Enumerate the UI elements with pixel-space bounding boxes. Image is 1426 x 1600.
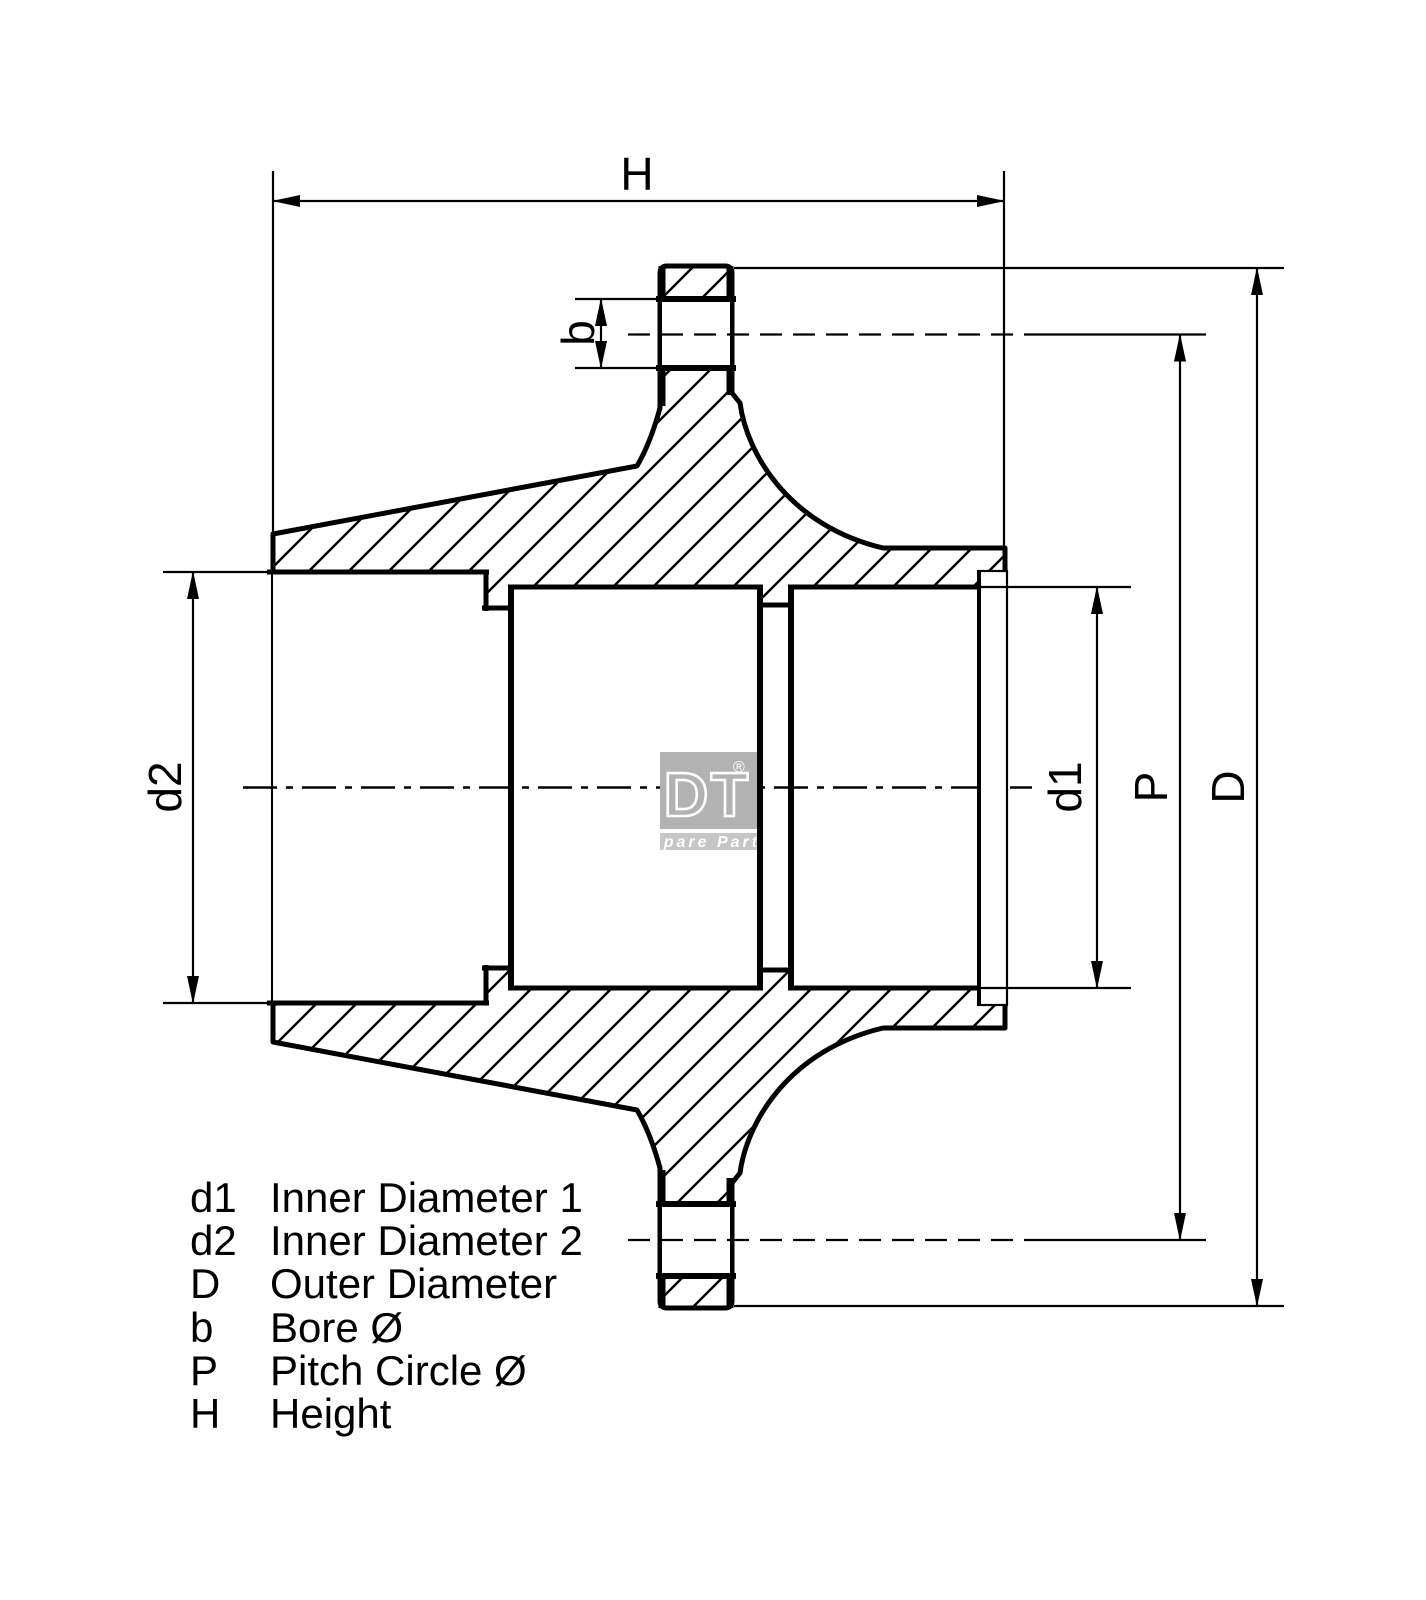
legend-symbol: H [190,1390,220,1437]
legend-row-h: H Height [190,1390,392,1437]
ring-insert [979,570,1007,1006]
legend-symbol: b [190,1304,213,1351]
logo-registered-icon: ® [733,759,745,776]
dimension-label-b: b [552,320,604,346]
legend-description: Inner Diameter 2 [270,1217,583,1264]
dimension-label-d1: d1 [1039,761,1091,812]
wheel-hub-technical-drawing: DT ® Spare Parts [0,0,1426,1600]
legend-description: Height [270,1390,392,1437]
dimension-label-p: P [1125,772,1177,803]
legend-description: Inner Diameter 1 [270,1174,583,1221]
legend-description: Pitch Circle Ø [270,1347,527,1394]
legend-symbol: d2 [190,1217,237,1264]
logo-tagline: Spare Parts [650,834,772,851]
dimension-label-h: H [620,148,653,200]
dimension-label-d-outer: D [1202,770,1254,803]
legend-symbol: D [190,1260,220,1307]
legend-symbol: P [190,1347,218,1394]
dimension-label-d2: d2 [139,761,191,812]
dt-logo: DT ® Spare Parts [650,752,772,851]
legend-description: Bore Ø [270,1304,403,1351]
legend-symbol: d1 [190,1174,237,1221]
legend-description: Outer Diameter [270,1260,557,1307]
